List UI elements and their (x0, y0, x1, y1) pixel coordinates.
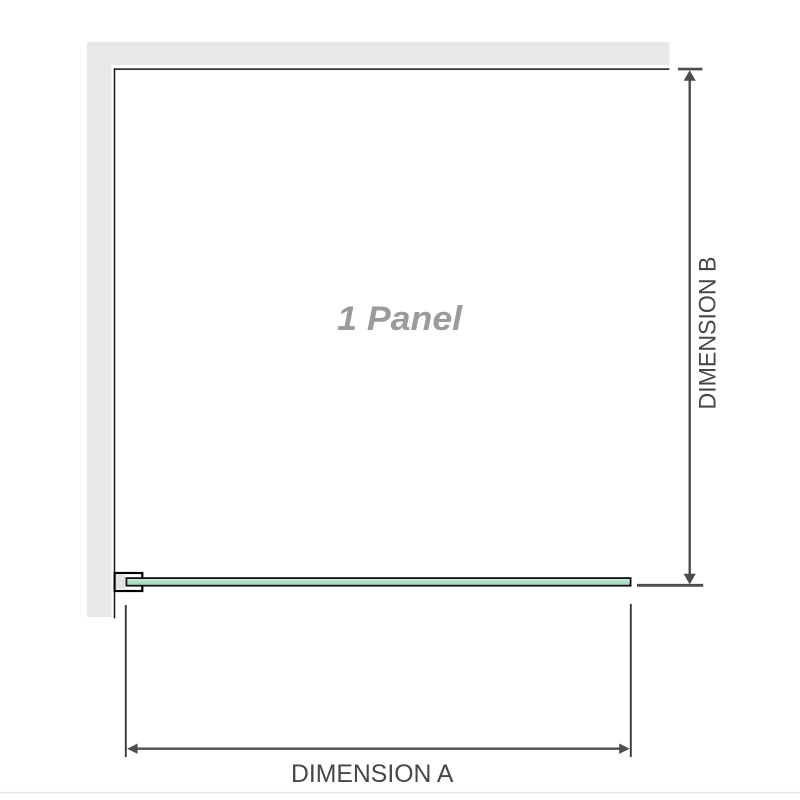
svg-text:DIMENSION A: DIMENSION A (291, 760, 454, 788)
svg-text:1 Panel: 1 Panel (337, 300, 464, 338)
svg-text:DIMENSION B: DIMENSION B (695, 257, 722, 410)
